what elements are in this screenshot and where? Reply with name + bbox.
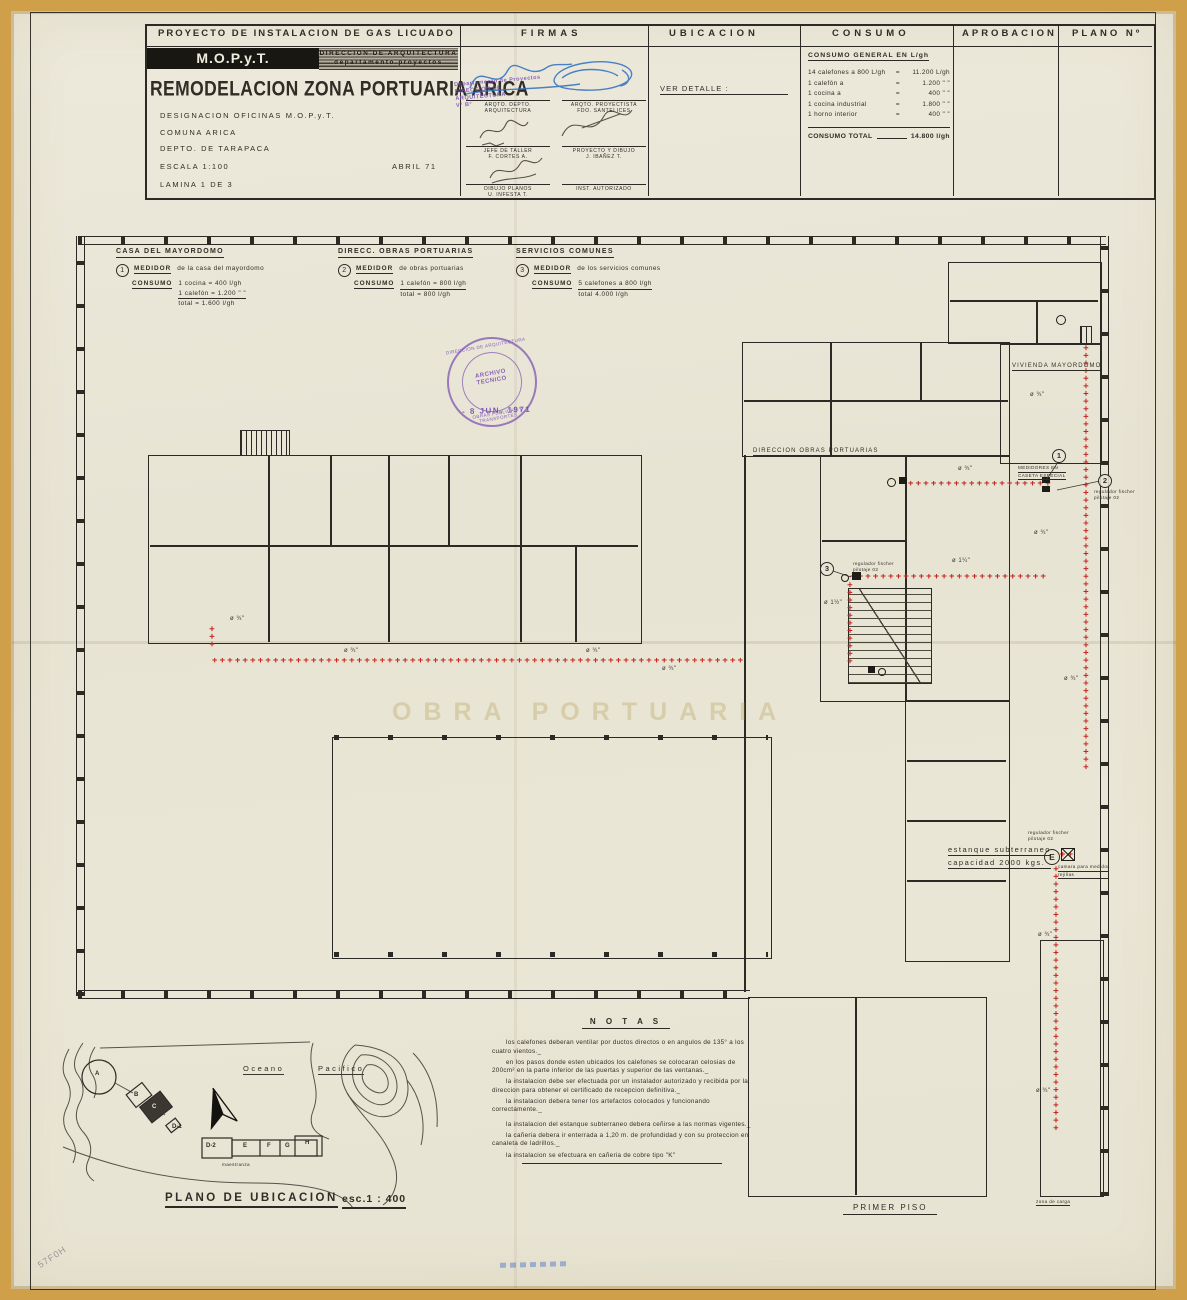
map-building-c: C <box>152 1104 156 1110</box>
meter-ref-1: 1 <box>1052 449 1066 463</box>
label-maestranza: maestranza <box>222 1162 250 1168</box>
label-camara: camara para medidor rejillas <box>1058 864 1109 879</box>
label-text: regulador fischer <box>853 561 894 567</box>
pipe-diameter-label: ø 1½" <box>824 600 842 606</box>
map-scale: esc.1 : 400 <box>342 1193 406 1209</box>
label-text: pilotaje 02 <box>1094 495 1135 501</box>
map-building-h: H <box>305 1140 309 1146</box>
pipe-diameter-label: ø ¾" <box>1038 932 1052 938</box>
label-text: CASETA ESPECIAL <box>1018 473 1066 481</box>
note-paragraph: los calefones deberan ventilar por ducto… <box>492 1039 760 1056</box>
pipe-diameter-label: ø 1¼" <box>952 558 970 564</box>
pipe-diameter-label: ø ¾" <box>344 648 358 654</box>
label-text: VIVIENDA MAYORDOMO <box>1012 363 1101 371</box>
label-oceano: Oceano <box>243 1064 284 1075</box>
label-regulador-e: regulador fischer pilotaje 02 <box>1028 830 1069 841</box>
label-direccion-obras: DIRECCION OBRAS PORTUARIAS <box>753 448 879 454</box>
pipe-diameter-label: ø ¾" <box>230 616 244 622</box>
meter-ref-3: 3 <box>820 562 834 576</box>
note-paragraph: en los pasos donde esten ubicados los ca… <box>492 1059 760 1076</box>
notes-end-rule <box>522 1163 722 1164</box>
label-text: zona de carga <box>1036 1199 1070 1206</box>
label-estanque: estanque subterraneo capacidad 2000 kgs. <box>948 845 1051 869</box>
label-pacifico: Pacifico <box>318 1064 364 1075</box>
map-building-f: F <box>267 1143 271 1149</box>
map-building-b: B <box>134 1092 138 1098</box>
label-text: estanque subterraneo <box>948 845 1051 856</box>
pipe-diameter-label: ø ¾" <box>1064 676 1078 682</box>
notes-title: N O T A S <box>582 1018 670 1029</box>
label-text: PRIMER PISO <box>843 1203 937 1215</box>
label-text: regulador fischer <box>1094 489 1135 495</box>
label-zona-carga: zona de carga <box>1036 1199 1070 1205</box>
map-building-g: G <box>285 1143 290 1149</box>
meter-ref-2: 2 <box>1098 474 1112 488</box>
label-medidores-caseta: MEDIDORES EN CASETA ESPECIAL <box>1018 465 1066 480</box>
pipe-diameter-label: ø ¾" <box>958 466 972 472</box>
label-vivienda-mayordomo: VIVIENDA MAYORDOMO <box>1012 363 1101 369</box>
pipe-diameter-label: ø ¾" <box>1030 392 1044 398</box>
label-text: MEDIDORES EN <box>1018 465 1066 473</box>
label-text: camara para medidor <box>1058 864 1109 872</box>
label-primer-piso: PRIMER PISO <box>843 1203 937 1212</box>
note-paragraph: la instalacion debera tener los artefact… <box>492 1098 760 1115</box>
label-text: regulador fischer <box>1028 830 1069 836</box>
pipe-diameter-label: ø ¾" <box>662 666 676 672</box>
map-building-e: E <box>243 1143 247 1149</box>
map-building-d1: D-1 <box>172 1124 182 1130</box>
drawing-sheet: PROYECTO DE INSTALACION DE GAS LICUADO F… <box>0 0 1187 1300</box>
label-text: capacidad 2000 kgs. <box>948 858 1051 869</box>
map-building-a: A <box>95 1071 99 1077</box>
pipe-diameter-label: ø ¾" <box>1036 1088 1050 1094</box>
label-regulador-2: regulador fischer pilotaje 02 <box>1094 489 1135 500</box>
label-text: DIRECCION OBRAS PORTUARIAS <box>753 448 879 456</box>
note-paragraph: la cañeria debera ir enterrada a 1,20 m.… <box>492 1132 760 1149</box>
note-paragraph: la instalacion se efectuara en cañeria d… <box>492 1152 760 1160</box>
map-caption: PLANO DE UBICACION <box>165 1192 338 1208</box>
label-regulador-3: regulador fischer pilotaje 02 <box>853 561 894 572</box>
note-paragraph: la instalacion debe ser efectuada por un… <box>492 1078 760 1095</box>
pipe-diameter-label: ø ¾" <box>586 648 600 654</box>
note-paragraph: la instalacion del estanque subterraneo … <box>492 1121 760 1129</box>
label-text: pilotaje 02 <box>853 567 894 573</box>
notes-block: N O T A S los calefones deberan ventilar… <box>492 1018 760 1164</box>
map-building-d2: D-2 <box>206 1143 216 1149</box>
label-text: pilotaje 02 <box>1028 836 1069 842</box>
pipe-diameter-label: ø ¾" <box>1034 530 1048 536</box>
label-text: rejillas <box>1058 872 1109 880</box>
